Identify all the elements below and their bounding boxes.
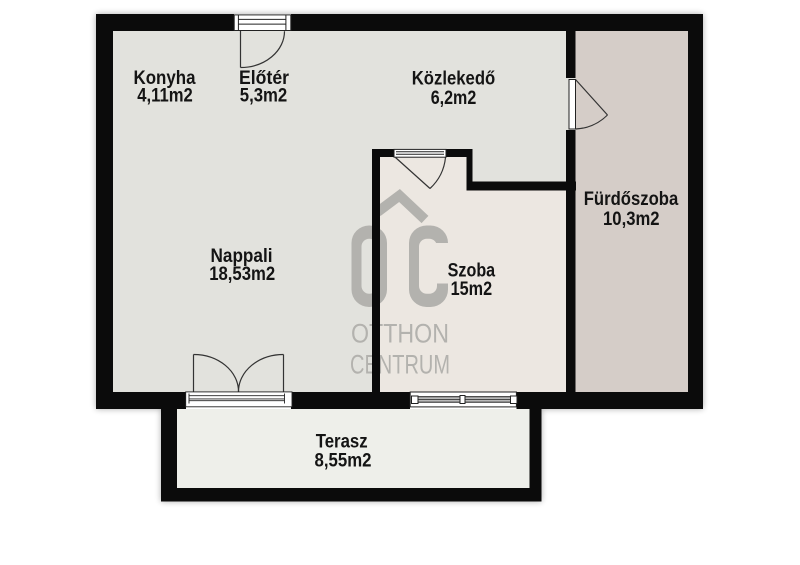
svg-text:CENTRUM: CENTRUM [350,350,450,380]
svg-text:Közlekedő: Közlekedő [412,69,496,90]
svg-text:18,53m2: 18,53m2 [209,264,275,285]
svg-text:15m2: 15m2 [451,279,493,300]
svg-text:4,11m2: 4,11m2 [137,86,193,107]
svg-text:6,2m2: 6,2m2 [431,88,477,109]
svg-text:Fürdőszoba: Fürdőszoba [584,189,679,210]
svg-text:8,55m2: 8,55m2 [315,450,372,471]
svg-text:OTTHON: OTTHON [351,319,449,349]
svg-text:5,3m2: 5,3m2 [240,86,288,107]
svg-text:10,3m2: 10,3m2 [603,209,660,230]
